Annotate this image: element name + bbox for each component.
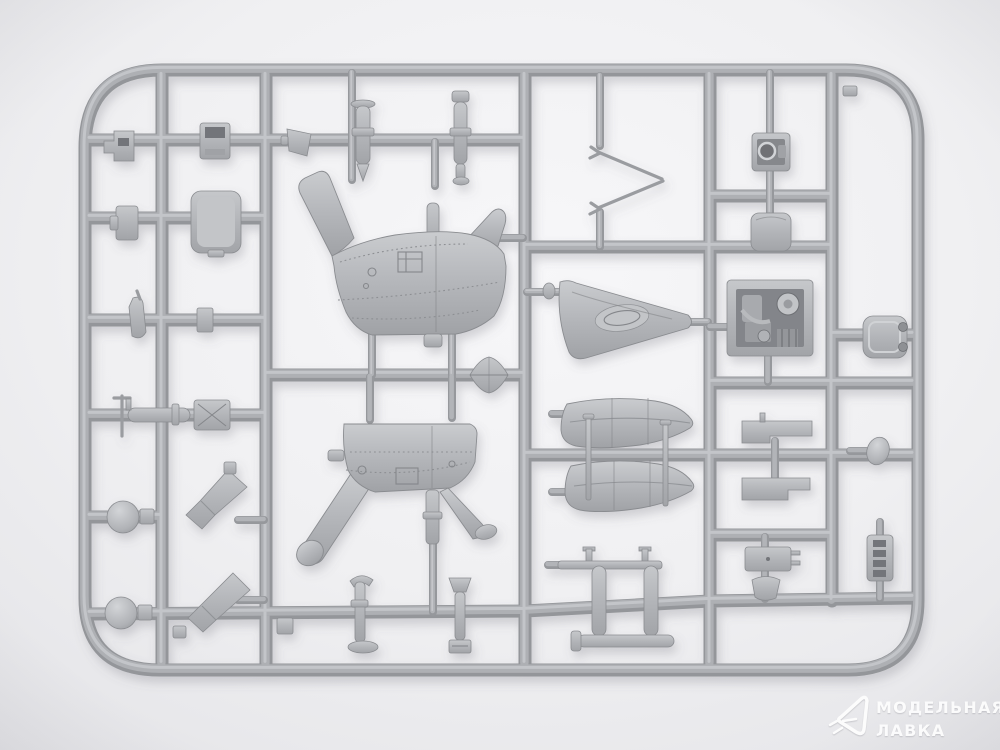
photo-canvas: МОДЕЛЬНАЯ ЛАВКА xyxy=(0,0,1000,750)
equipment-box xyxy=(751,213,791,251)
cockpit-door xyxy=(191,191,241,257)
slotted-box xyxy=(200,123,230,159)
winglet xyxy=(752,577,780,601)
model-kit-sprue-photo: МОДЕЛЬНАЯ ЛАВКА xyxy=(0,0,1000,750)
watermark-line2: ЛАВКА xyxy=(876,721,945,740)
engine-block xyxy=(727,280,813,356)
ladder-strip xyxy=(867,535,893,581)
instrument-box xyxy=(752,133,790,171)
frame-tab xyxy=(843,86,857,96)
radiator-panel xyxy=(863,316,908,358)
watermark-line1: МОДЕЛЬНАЯ xyxy=(876,698,1000,717)
crossed-box xyxy=(194,400,230,430)
